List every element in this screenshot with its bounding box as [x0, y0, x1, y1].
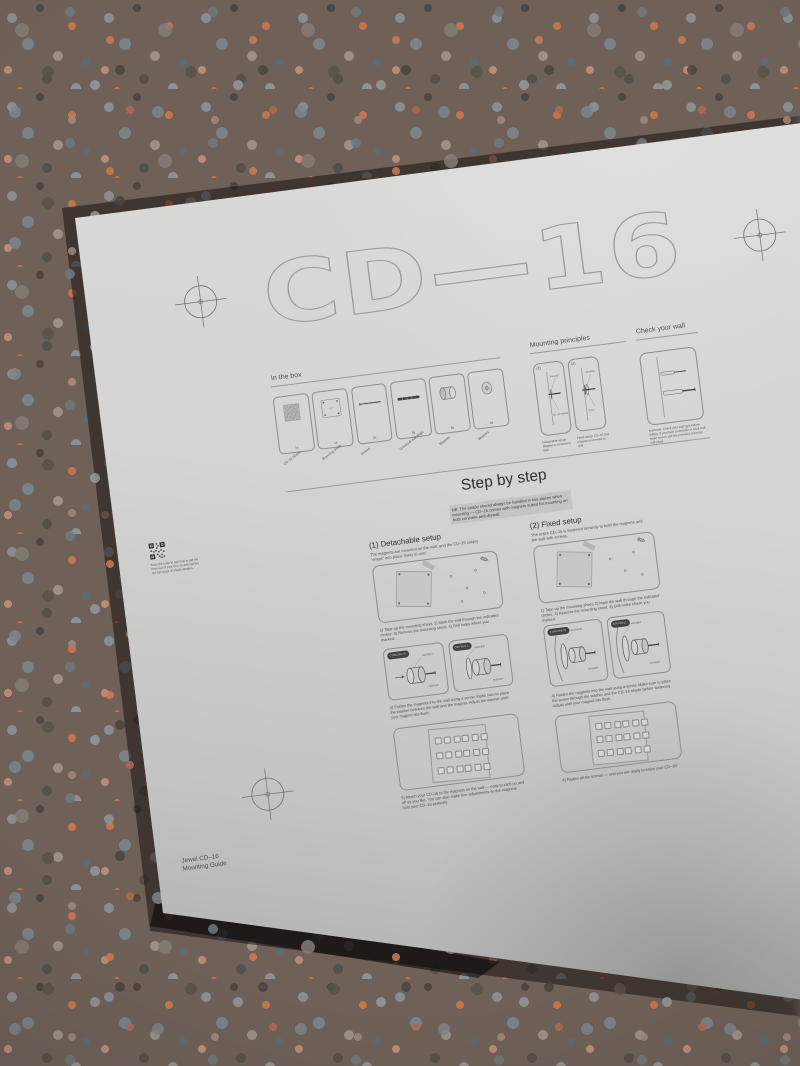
item-qty: 8x: [436, 423, 470, 431]
registration-mark-icon: [234, 761, 301, 828]
qr-code-icon: [148, 541, 167, 560]
diagram-label: CD–16 SHADE: [553, 412, 569, 417]
fixed-step1-card: ✎: [532, 531, 660, 604]
registration-mark-icon: [726, 202, 793, 269]
screw-icon: [351, 384, 389, 422]
concrete-card: CONCRETE MAGNET SCREW: [382, 642, 449, 701]
wall-plug-icon: [390, 379, 428, 417]
drywall-card: DRYWALL WASHER MAGNET: [606, 610, 672, 679]
diagram-label: MAGNET: [550, 374, 560, 378]
detachable-step1-card: ✎: [372, 550, 504, 624]
in-the-box-title: In the box: [271, 372, 302, 383]
item-card-shade: 1x: [272, 393, 315, 455]
check-wall-card: [639, 346, 705, 426]
diagram-label: MAGNET: [585, 370, 595, 374]
item-label: Magnets: [438, 435, 450, 446]
qr-note: Scan the code to see how to get the most…: [151, 558, 202, 576]
wall-fastener-diagram: [640, 347, 704, 424]
diagram-label: WASHER: [630, 621, 641, 625]
washer-icon: [468, 369, 506, 407]
diagram-label: MAGNET: [650, 661, 661, 665]
principle-card-2: (2) MAGNET WALL: [567, 356, 607, 432]
diagram-label: MAGNET: [422, 653, 433, 657]
fixed-magnet-cards: CONCRETE CD–16 SHADE MAGNET: [543, 610, 672, 687]
item-card-screws: 8x: [350, 383, 393, 445]
item-card-magnets: 8x: [428, 373, 471, 435]
paper-sheet: CD—16 In the box 1x: [0, 0, 800, 1066]
item-label: Screws: [360, 446, 371, 456]
magnet-grid-panel: [428, 723, 491, 782]
diagram-label: MAGNET: [588, 666, 599, 670]
mounting-sheet-icon: [312, 389, 350, 427]
fixed-result-card: [554, 701, 682, 774]
item-card-plugs: 8x: [389, 378, 432, 440]
magnet-icon: [429, 374, 467, 412]
principle-num: (2): [571, 362, 576, 367]
diagram-label: WALL: [588, 408, 595, 412]
step-by-step-title: Step by step: [404, 459, 605, 502]
diagram-label: MAGNET: [492, 678, 503, 682]
shade-grid-icon: [274, 394, 312, 432]
terrazzo-floor: CD—16 In the box 1x: [0, 0, 800, 1066]
wall-section-diagram: MAGNET WALL: [568, 357, 606, 431]
concrete-card: CONCRETE CD–16 SHADE MAGNET: [543, 618, 609, 687]
principle-card-1: (1) MAGNET CD–16 SHADE: [532, 360, 572, 436]
magnet-grid-panel: [588, 711, 648, 766]
item-card-guide: 1x: [311, 388, 354, 450]
principle-caption-1: Detachable setup: Magnet is screwed to w…: [542, 437, 575, 453]
diagram-label: WASHER: [474, 645, 485, 649]
diagram-label: SCREW: [429, 684, 439, 688]
item-qty: 8x: [474, 418, 508, 426]
item-qty: 8x: [358, 433, 392, 441]
item-label: Washers: [477, 430, 490, 441]
detachable-result-card: [392, 713, 525, 791]
mounting-guide-document: CD—16 In the box 1x: [75, 93, 800, 952]
principle-caption-2: Fixed setup: CD–16 and magnet is screwed…: [577, 433, 611, 449]
item-card-washers: 8x: [467, 368, 510, 430]
drywall-card: DRYWALL WASHER MAGNET: [447, 633, 514, 692]
wall-section-diagram: MAGNET CD–16 SHADE: [533, 361, 571, 435]
logo-text: CD—16: [257, 194, 688, 342]
registration-mark-icon: [167, 268, 234, 335]
cd16-logo: CD—16: [253, 194, 693, 342]
principle-num: (1): [536, 366, 541, 371]
